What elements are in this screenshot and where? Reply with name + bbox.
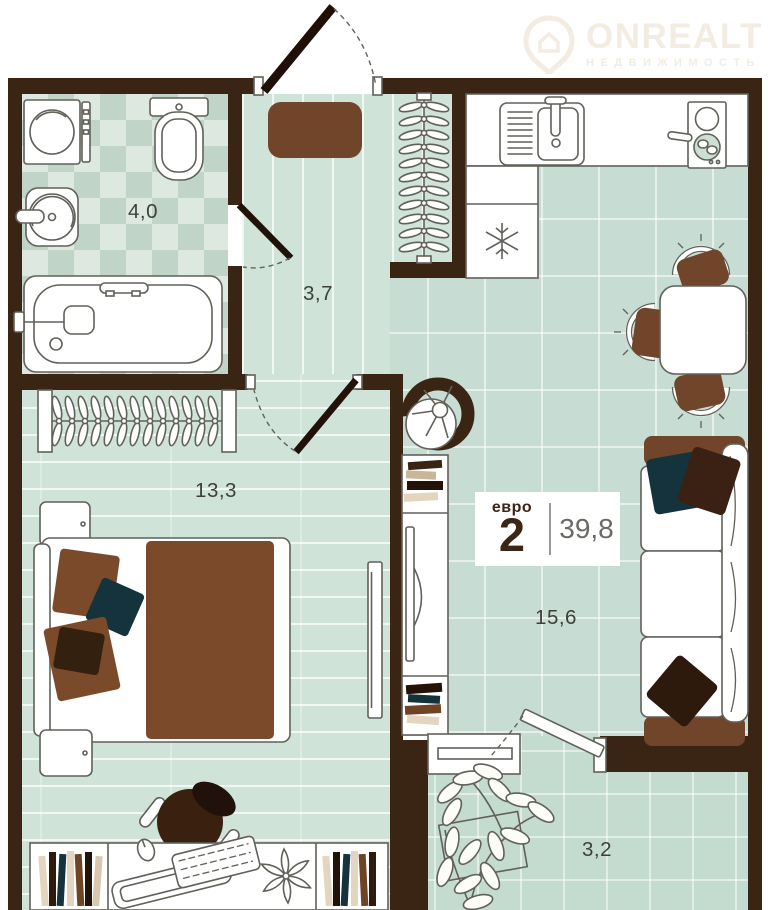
kitchen-sink <box>500 97 584 165</box>
dining-set <box>614 234 746 428</box>
area-label-bedroom: 13,3 <box>176 479 256 503</box>
badge-divider <box>549 503 551 555</box>
area-label-hallway: 3,7 <box>288 282 348 306</box>
dining-chair <box>673 368 730 428</box>
nightstand-bottom <box>40 730 92 776</box>
unit-type-badge: евро 2 39,8 <box>475 492 620 566</box>
area-label-bathroom: 4,0 <box>113 200 173 224</box>
balcony-plant <box>434 761 557 910</box>
dining-table <box>660 286 746 374</box>
area-label-living-kitchen: 15,6 <box>516 606 596 630</box>
bathroom-sink <box>16 188 78 246</box>
tv <box>406 527 414 661</box>
toilet <box>150 98 208 180</box>
bedroom-hanger-rack <box>38 390 236 452</box>
tv-stand <box>402 455 448 735</box>
hallway-cabinet <box>268 102 362 158</box>
closet-hanger-rack <box>398 93 449 263</box>
washing-machine <box>24 100 90 164</box>
bed-pillow-dark <box>53 626 106 675</box>
bedroom-dresser <box>368 562 382 718</box>
entrance-door <box>254 7 382 95</box>
round-armchair <box>406 384 468 449</box>
desk <box>30 835 388 910</box>
bed-blanket <box>146 541 274 739</box>
bathtub <box>14 276 222 372</box>
floorplan-page: ONREALT НЕДВИЖИМОСТЬ <box>0 0 770 910</box>
unit-type-number: 2 <box>475 510 549 559</box>
total-area-value: 39,8 <box>553 492 620 566</box>
bed <box>34 538 290 742</box>
furniture-layer <box>0 0 770 910</box>
bedroom-door <box>246 375 362 452</box>
bathroom-door <box>239 205 291 268</box>
area-label-balcony: 3,2 <box>567 838 627 862</box>
sofa <box>641 436 748 746</box>
